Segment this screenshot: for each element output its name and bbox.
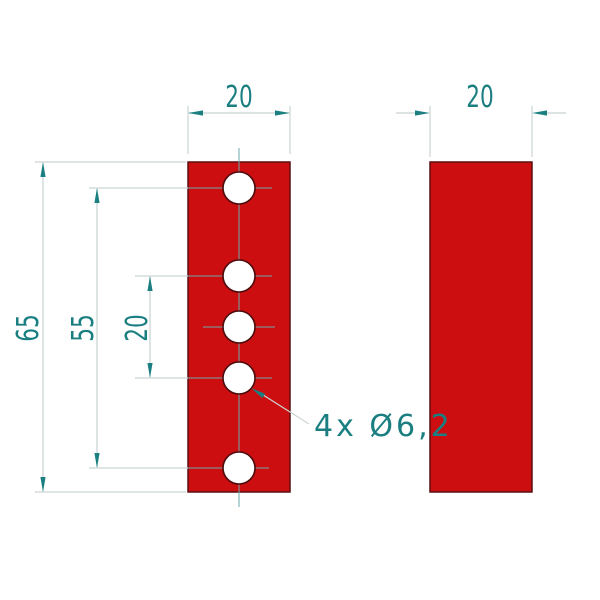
arrowhead-down xyxy=(94,453,99,468)
hole-3 xyxy=(223,311,255,343)
technical-drawing xyxy=(0,0,600,600)
arrowhead-down xyxy=(40,477,45,492)
dim-side-width-label: 20 xyxy=(466,83,493,113)
hole-2 xyxy=(223,260,255,292)
hole-4 xyxy=(223,362,255,394)
hole-1 xyxy=(223,172,255,204)
arrowhead-down xyxy=(147,363,152,378)
arrowhead-up xyxy=(40,162,45,177)
dimension-overall-height xyxy=(35,162,186,492)
arrowhead-up xyxy=(147,276,152,291)
arrowhead-left xyxy=(532,110,547,115)
hole-5 xyxy=(223,452,255,484)
arrowhead-right xyxy=(275,110,290,115)
dim-hole-span-label: 55 xyxy=(69,314,99,341)
dim-overall-height-label: 65 xyxy=(14,314,44,341)
drawing-canvas: 20 20 65 55 20 4x Ø6,2 xyxy=(0,0,600,600)
arrowhead-right xyxy=(415,110,430,115)
dim-hole-pitch-label: 20 xyxy=(123,314,153,341)
hole-callout: 4x Ø6,2 xyxy=(314,412,453,442)
arrowhead-left xyxy=(188,110,203,115)
dim-front-width-label: 20 xyxy=(225,83,252,113)
arrowhead-up xyxy=(94,188,99,203)
